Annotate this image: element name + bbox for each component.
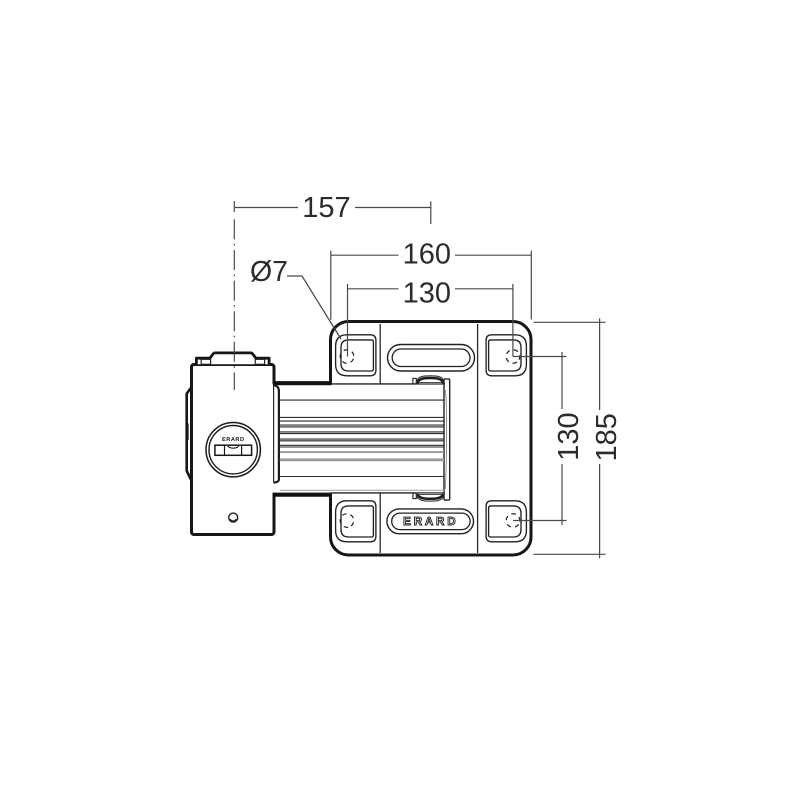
svg-text:Ø7: Ø7 <box>250 256 288 288</box>
svg-text:130: 130 <box>403 277 451 309</box>
svg-text:130: 130 <box>553 412 585 460</box>
svg-text:185: 185 <box>591 413 623 461</box>
svg-text:157: 157 <box>302 192 350 224</box>
svg-text:ERARD: ERARD <box>403 515 458 528</box>
svg-text:ERARD: ERARD <box>222 437 245 443</box>
svg-text:160: 160 <box>403 238 451 270</box>
